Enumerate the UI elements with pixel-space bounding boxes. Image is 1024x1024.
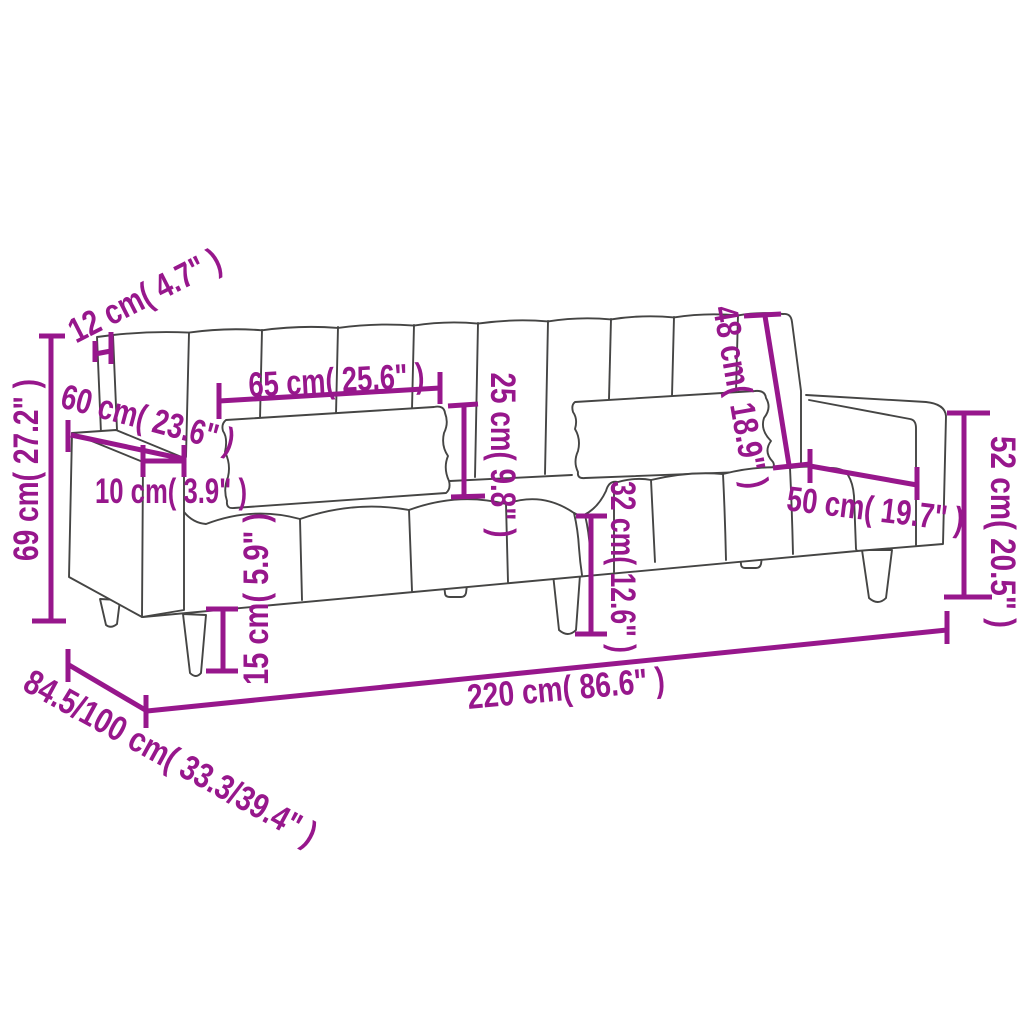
svg-text:25 cm( 9.8" ): 25 cm( 9.8" ) — [483, 373, 522, 538]
svg-text:32 cm( 12.6" ): 32 cm( 12.6" ) — [603, 481, 642, 653]
svg-text:15 cm( 5.9" ): 15 cm( 5.9" ) — [237, 513, 276, 685]
svg-text:52 cm( 20.5" ): 52 cm( 20.5" ) — [983, 436, 1022, 628]
svg-text:10 cm( 3.9" ): 10 cm( 3.9" ) — [95, 472, 247, 511]
svg-text:69 cm( 27.2" ): 69 cm( 27.2" ) — [7, 379, 46, 561]
